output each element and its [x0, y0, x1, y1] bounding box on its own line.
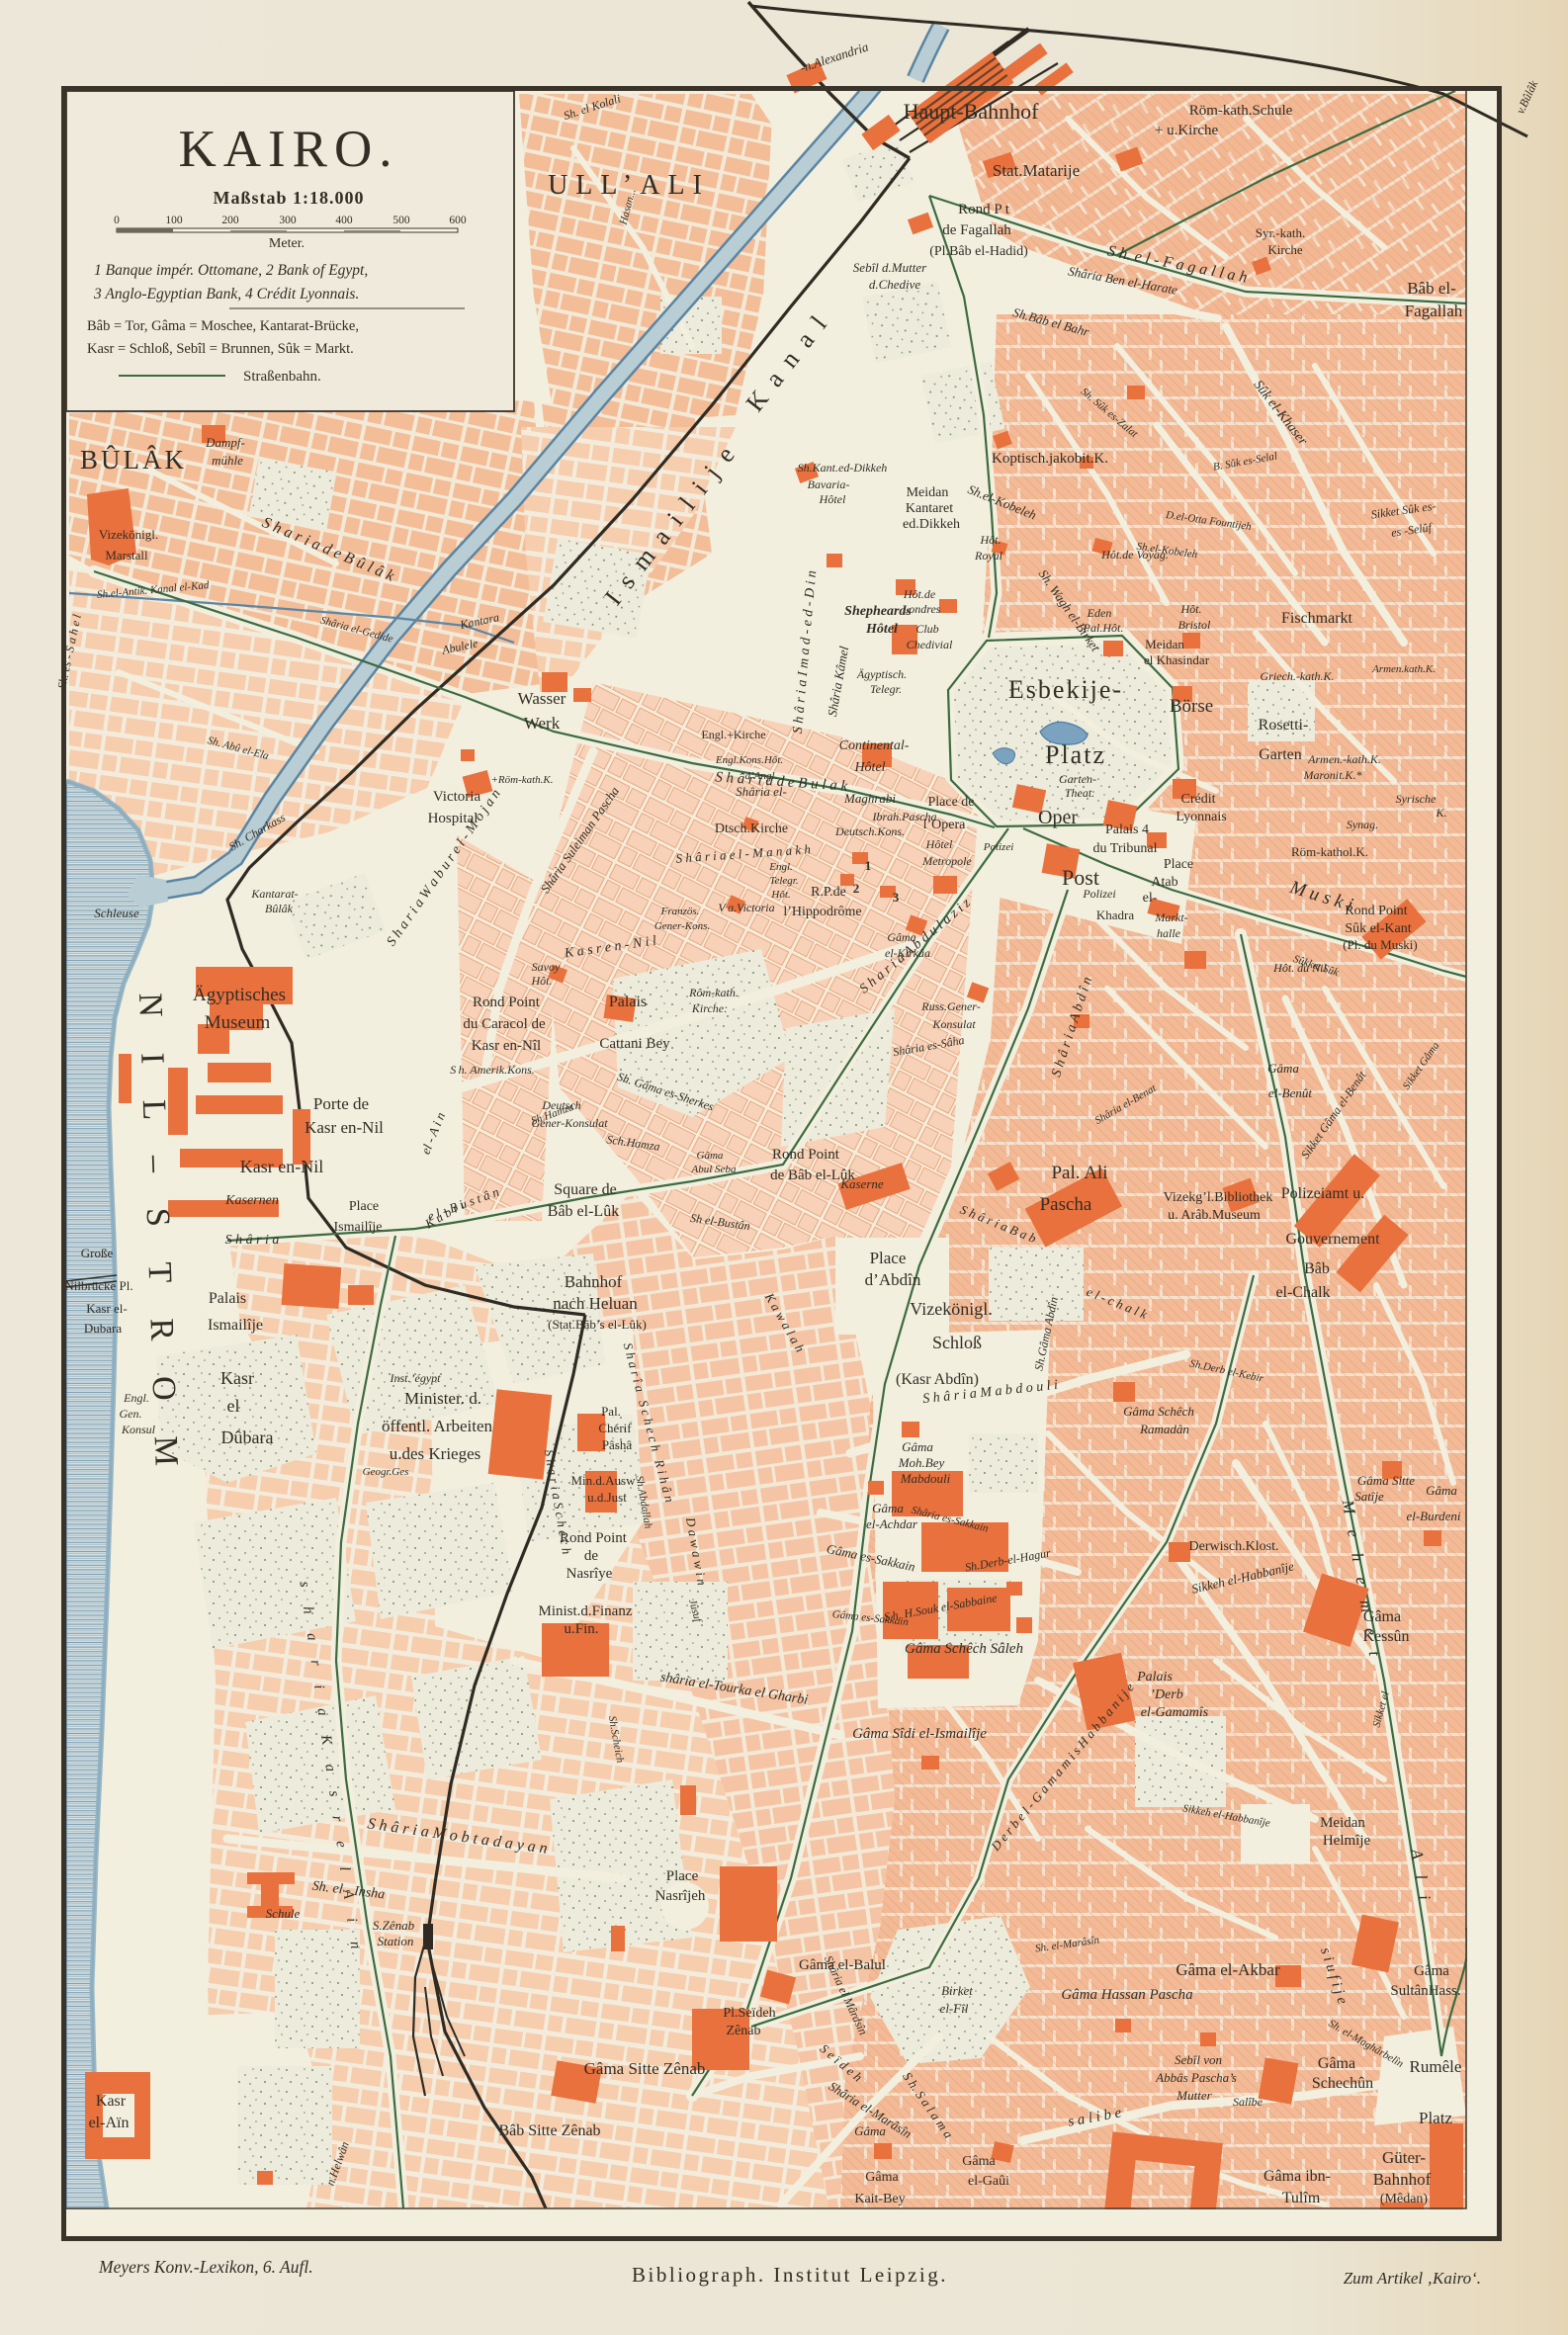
svg-text:Bâb el-: Bâb el-	[1407, 279, 1456, 298]
svg-text:halle: halle	[1157, 926, 1181, 940]
svg-text:Hôtel: Hôtel	[865, 622, 898, 637]
svg-text:+Röm-kath.K.: +Röm-kath.K.	[490, 774, 553, 786]
svg-text:Kessûn: Kessûn	[1362, 1628, 1409, 1645]
svg-text:Straßenbahn.: Straßenbahn.	[243, 369, 321, 385]
svg-text:Große: Große	[81, 1246, 114, 1260]
svg-text:Gâma Sitte Zênab: Gâma Sitte Zênab	[584, 2059, 706, 2078]
svg-text:Telegr.: Telegr.	[870, 682, 902, 696]
svg-text:el-Achdar: el-Achdar	[866, 1516, 918, 1531]
svg-text:Gâma: Gâma	[1267, 1061, 1299, 1076]
svg-text:Place: Place	[666, 1868, 699, 1884]
svg-text:Maghrabi: Maghrabi	[843, 791, 896, 806]
svg-text:Ibrah.Pascha: Ibrah.Pascha	[872, 810, 937, 823]
svg-text:mühle: mühle	[212, 453, 243, 468]
svg-text:Moh.Bey: Moh.Bey	[898, 1455, 945, 1470]
svg-text:Nilbrücke Pl.: Nilbrücke Pl.	[64, 1278, 132, 1293]
svg-text:0: 0	[114, 215, 120, 226]
svg-text:Rond Point: Rond Point	[772, 1147, 840, 1163]
svg-text:(Pl.Bâb el-Hadid): (Pl.Bâb el-Hadid)	[929, 244, 1028, 259]
svg-text:Ismailîje: Ismailîje	[208, 1317, 263, 1334]
svg-text:Gâma el-Akbar: Gâma el-Akbar	[1176, 1960, 1280, 1979]
svg-text:Ägyptisch.: Ägyptisch.	[856, 667, 907, 681]
svg-text:Garten-: Garten-	[1059, 772, 1096, 786]
svg-text:Polizei: Polizei	[1082, 887, 1115, 901]
svg-text:Röm-kathol.K.: Röm-kathol.K.	[1291, 844, 1368, 859]
svg-text:Khadra: Khadra	[1096, 908, 1134, 922]
svg-text:Tulîm: Tulîm	[1282, 2190, 1321, 2206]
svg-text:Kirche: Kirche	[1267, 242, 1303, 257]
svg-text:Gâma: Gâma	[1426, 1483, 1457, 1498]
svg-text:Haupt-Bahnhof: Haupt-Bahnhof	[904, 99, 1040, 124]
svg-text:1 Banque impér. Ottomane, 2 Ba: 1 Banque impér. Ottomane, 2 Bank of Egyp…	[94, 262, 368, 279]
svg-text:Inst.’égypt: Inst.’égypt	[390, 1371, 442, 1385]
svg-text:Vizekönigl.: Vizekönigl.	[99, 527, 158, 542]
svg-text:Pal. Ali: Pal. Ali	[1051, 1163, 1107, 1183]
svg-text:Syrische: Syrische	[1396, 792, 1437, 806]
svg-text:Gâma Schêch: Gâma Schêch	[1123, 1404, 1194, 1419]
svg-text:Kaserne: Kaserne	[839, 1176, 884, 1191]
svg-text:du Caracol de: du Caracol de	[463, 1016, 546, 1032]
svg-text:Rond Point: Rond Point	[1345, 904, 1408, 918]
svg-text:Eden: Eden	[1087, 606, 1112, 620]
svg-text:d.Chedive: d.Chedive	[869, 277, 921, 292]
svg-text:Meter.: Meter.	[269, 236, 305, 251]
svg-text:Engl.: Engl.	[123, 1391, 149, 1405]
svg-text:400: 400	[335, 215, 353, 226]
svg-text:Porte de: Porte de	[313, 1094, 369, 1113]
svg-text:Esbekije-: Esbekije-	[1008, 675, 1123, 704]
svg-text:el: el	[227, 1396, 240, 1416]
svg-text:Hôt.de: Hôt.de	[903, 587, 936, 601]
svg-text:Stat.Matarije: Stat.Matarije	[993, 161, 1080, 180]
svg-text:Palais 4: Palais 4	[1105, 822, 1149, 837]
svg-text:Hôtel: Hôtel	[853, 760, 885, 775]
svg-text:Bavaria-: Bavaria-	[808, 477, 850, 491]
svg-text:Minister. d.: Minister. d.	[404, 1389, 481, 1408]
svg-text:Shâria el-: Shâria el-	[736, 784, 787, 799]
svg-text:S h â r i a: S h â r i a	[225, 1233, 280, 1248]
svg-text:Gâma: Gâma	[902, 1439, 933, 1454]
svg-text:Kasr = Schloß, Sebîl = Brunnen: Kasr = Schloß, Sebîl = Brunnen, Sûk = Ma…	[87, 341, 354, 357]
svg-text:Griech.-kath.K.: Griech.-kath.K.	[1261, 669, 1335, 683]
svg-text:Kasernen: Kasernen	[224, 1193, 279, 1208]
svg-text:Londres: Londres	[902, 602, 941, 616]
svg-text:Schechûn: Schechûn	[1312, 2075, 1373, 2092]
svg-text:Maronit.K.*: Maronit.K.*	[1303, 768, 1362, 782]
svg-text:Gâma Hassan Pascha: Gâma Hassan Pascha	[1061, 1987, 1192, 2003]
svg-text:Kasr en-Nîl: Kasr en-Nîl	[472, 1038, 541, 1054]
svg-text:Zum Artikel ‚Kairo‘.: Zum Artikel ‚Kairo‘.	[1344, 2269, 1481, 2288]
svg-text:300: 300	[279, 215, 297, 226]
svg-text:Place: Place	[349, 1199, 379, 1214]
svg-text:öffentl. Arbeiten: öffentl. Arbeiten	[382, 1417, 493, 1435]
svg-text:Synag.: Synag.	[1347, 818, 1378, 831]
svg-text:Bâb Sitte Zênab: Bâb Sitte Zênab	[498, 2122, 600, 2139]
svg-text:Crédit: Crédit	[1181, 792, 1216, 807]
svg-text:Derwisch.Klost.: Derwisch.Klost.	[1189, 1539, 1279, 1554]
svg-text:Birket: Birket	[941, 1983, 973, 1998]
svg-text:Hôt.: Hôt.	[980, 533, 1002, 547]
svg-text:(Pl. du Muski): (Pl. du Muski)	[1343, 937, 1417, 952]
svg-text:Gâma: Gâma	[1414, 1963, 1449, 1979]
svg-text:Minist.d.Finanz: Minist.d.Finanz	[538, 1603, 632, 1619]
svg-text:Konsul: Konsul	[121, 1423, 156, 1436]
svg-text:Telegr.: Telegr.	[769, 875, 798, 887]
svg-text:Gâma ibn-: Gâma ibn-	[1263, 2168, 1331, 2185]
svg-text:Kait-Bey: Kait-Bey	[854, 2192, 905, 2206]
svg-text:’Derb: ’Derb	[1150, 1687, 1182, 1702]
svg-text:Geogr.Ges: Geogr.Ges	[363, 1466, 409, 1478]
svg-text:Bâb: Bâb	[1304, 1260, 1330, 1277]
svg-text:Kasr: Kasr	[220, 1368, 254, 1388]
svg-text:Rond Point: Rond Point	[473, 995, 541, 1010]
svg-text:Ismailîje: Ismailîje	[334, 1220, 383, 1235]
svg-text:Kasr en-Nil: Kasr en-Nil	[240, 1157, 323, 1176]
svg-text:Fischmarkt: Fischmarkt	[1281, 610, 1353, 627]
svg-text:(Kasr Abdîn): (Kasr Abdîn)	[896, 1371, 979, 1388]
svg-text:Helmîje: Helmîje	[1323, 1833, 1371, 1849]
svg-text:Cattani Bey: Cattani Bey	[599, 1036, 670, 1052]
svg-text:Gouvernement: Gouvernement	[1285, 1231, 1380, 1248]
svg-text:Ägyptisches: Ägyptisches	[193, 985, 286, 1005]
svg-text:Russ.Gener-: Russ.Gener-	[920, 999, 980, 1013]
svg-text:du Tribunal: du Tribunal	[1093, 841, 1158, 856]
svg-text:600: 600	[449, 215, 467, 226]
svg-text:el Khasindar: el Khasindar	[1144, 652, 1210, 667]
svg-text:Konsulat: Konsulat	[931, 1017, 976, 1031]
svg-text:el-Aïn: el-Aïn	[89, 2115, 130, 2131]
svg-text:Hôtel: Hôtel	[819, 492, 846, 506]
svg-text:Fagallah: Fagallah	[1405, 302, 1463, 320]
svg-text:Bibliograph. Institut Leipzig.: Bibliograph. Institut Leipzig.	[632, 2263, 948, 2287]
svg-text:Club: Club	[915, 622, 938, 636]
svg-text:K.: K.	[1435, 806, 1446, 820]
svg-text:V a.Victoria: V a.Victoria	[718, 901, 774, 914]
svg-text:Wasser: Wasser	[518, 689, 566, 708]
svg-text:Theat.: Theat.	[1065, 786, 1094, 800]
svg-text:Engl.: Engl.	[768, 861, 793, 873]
svg-text:Markt-: Markt-	[1154, 910, 1187, 924]
svg-text:Chérif: Chérif	[598, 1421, 632, 1435]
svg-text:Armen.-kath.K.: Armen.-kath.K.	[1307, 752, 1381, 766]
svg-text:Sebîl d.Mutter: Sebîl d.Mutter	[853, 260, 927, 275]
svg-text:Abul Seba: Abul Seba	[691, 1164, 737, 1175]
svg-text:Mabdouli: Mabdouli	[900, 1471, 951, 1486]
svg-text:Bûlâk: Bûlâk	[265, 902, 294, 915]
svg-text:Maßstab 1:18.000: Maßstab 1:18.000	[213, 188, 364, 208]
svg-text:Sûk el-Kant: Sûk el-Kant	[1345, 921, 1411, 936]
svg-text:Marstall: Marstall	[105, 548, 148, 562]
svg-text:nach Heluan: nach Heluan	[553, 1294, 638, 1313]
svg-text:Schloß: Schloß	[932, 1333, 982, 1352]
svg-text:de: de	[584, 1548, 599, 1564]
svg-text:Dûbara: Dûbara	[221, 1427, 274, 1447]
svg-text:de Fagallah: de Fagallah	[942, 222, 1011, 238]
svg-text:el-Fîl: el-Fîl	[940, 2001, 969, 2016]
svg-text:Pal.: Pal.	[601, 1404, 621, 1419]
svg-text:Hôt.: Hôt.	[531, 974, 553, 988]
svg-text:Ramadân: Ramadân	[1139, 1422, 1189, 1436]
svg-text:Syr.-kath.: Syr.-kath.	[1256, 225, 1306, 240]
svg-text:el-Gaûi: el-Gaûi	[968, 2174, 1009, 2189]
svg-text:Hôt.: Hôt.	[770, 889, 790, 901]
svg-text:Vizekg’l.Bibliothek: Vizekg’l.Bibliothek	[1164, 1190, 1273, 1205]
svg-text:Koptisch.jakobit.K.: Koptisch.jakobit.K.	[992, 451, 1108, 467]
svg-text:Kirche:: Kirche:	[691, 1001, 728, 1015]
svg-text:Gener-Kons.: Gener-Kons.	[654, 920, 710, 932]
svg-text:Bahnhof: Bahnhof	[1373, 2170, 1432, 2189]
svg-text:Engl.Kons.Hôt.: Engl.Kons.Hôt.	[715, 754, 783, 766]
svg-text:Dampf-: Dampf-	[205, 435, 245, 450]
svg-text:Nasrîye: Nasrîye	[566, 1566, 613, 1582]
svg-text:Sebîl von: Sebîl von	[1175, 2052, 1222, 2067]
svg-text:Min.d.Ausw: Min.d.Ausw	[570, 1473, 636, 1488]
svg-text:Abbâs Pascha’s: Abbâs Pascha’s	[1155, 2070, 1237, 2085]
svg-text:Werk: Werk	[524, 714, 561, 733]
svg-text:Gâma Schêch Sâleh: Gâma Schêch Sâleh	[905, 1641, 1023, 1657]
svg-text:el-Burdeni: el-Burdeni	[1406, 1509, 1460, 1523]
svg-text:1: 1	[865, 858, 872, 873]
svg-text:Deutsch.Kons.: Deutsch.Kons.	[834, 824, 905, 838]
svg-text:500: 500	[392, 215, 410, 226]
svg-text:Gâma: Gâma	[697, 1150, 724, 1162]
svg-text:Pl.Seïdeh: Pl.Seïdeh	[723, 2006, 775, 2021]
svg-text:Palais: Palais	[609, 994, 647, 1010]
svg-text:Rumêle: Rumêle	[1410, 2057, 1462, 2076]
svg-text:u.d.Just: u.d.Just	[587, 1490, 627, 1505]
svg-text:Gâma: Gâma	[1363, 1608, 1401, 1625]
svg-text:u.des Krieges: u.des Krieges	[390, 1444, 481, 1463]
svg-text:Salîbe: Salîbe	[1233, 2095, 1263, 2109]
svg-text:Engl.+Kirche: Engl.+Kirche	[701, 728, 765, 741]
svg-text:Gâma: Gâma	[1318, 2055, 1355, 2072]
svg-text:l’Hippodrôme: l’Hippodrôme	[783, 905, 861, 919]
svg-text:el-Chalk: el-Chalk	[1275, 1284, 1330, 1301]
svg-text:Savoy: Savoy	[532, 960, 561, 974]
svg-text:d’Angl.: d’Angl.	[745, 770, 778, 782]
svg-text:S h. Amerik.Kons.: S h. Amerik.Kons.	[450, 1063, 535, 1077]
svg-text:Pâshâ: Pâshâ	[602, 1437, 633, 1452]
svg-text:Gâma: Gâma	[872, 1501, 904, 1515]
svg-text:Armen.kath.K.: Armen.kath.K.	[1371, 663, 1436, 675]
svg-text:el-Benût: el-Benût	[1268, 1085, 1312, 1100]
svg-text:Sh.Kant.ed-Dikkeh: Sh.Kant.ed-Dikkeh	[798, 461, 888, 475]
svg-text:Palais: Palais	[1136, 1670, 1173, 1685]
svg-text:BÛLÂK: BÛLÂK	[80, 445, 187, 475]
svg-text:Gâma Sitte: Gâma Sitte	[1357, 1473, 1415, 1488]
svg-text:200: 200	[221, 215, 239, 226]
svg-text:Bahnhof: Bahnhof	[565, 1272, 623, 1291]
svg-text:Place: Place	[870, 1249, 907, 1267]
svg-text:Vizekönigl.: Vizekönigl.	[910, 1299, 992, 1319]
svg-text:Gâma: Gâma	[865, 2170, 899, 2185]
svg-text:Polizeiamt u.: Polizeiamt u.	[1281, 1185, 1364, 1202]
svg-text:Französ.: Französ.	[660, 906, 700, 917]
svg-text:Meidan: Meidan	[1145, 637, 1184, 651]
svg-text:+ u.Kirche: + u.Kirche	[1155, 123, 1219, 138]
svg-text:SultânHass.: SultânHass.	[1390, 1983, 1460, 1999]
svg-text:Kantarat-: Kantarat-	[250, 887, 298, 901]
svg-text:el-: el-	[1143, 891, 1158, 906]
svg-text:Meidan: Meidan	[907, 485, 949, 500]
svg-text:R.P.de: R.P.de	[811, 885, 846, 900]
svg-text:Gâma Sîdi el-Ismailîje: Gâma Sîdi el-Ismailîje	[852, 1726, 987, 1742]
svg-text:Schleuse: Schleuse	[94, 906, 139, 920]
svg-text:Schule: Schule	[266, 1906, 301, 1921]
svg-text:Garten: Garten	[1259, 746, 1302, 763]
svg-text:Rôm-kath.: Rôm-kath.	[688, 986, 739, 999]
svg-text:u.Fin.: u.Fin.	[564, 1621, 598, 1637]
svg-text:ed.Dikkeh: ed.Dikkeh	[903, 517, 960, 532]
svg-text:d’Abdîn: d’Abdîn	[865, 1270, 921, 1289]
svg-text:Rond P t: Rond P t	[958, 202, 1010, 217]
svg-text:Oper: Oper	[1038, 807, 1078, 828]
svg-text:Bâb el-Lûk: Bâb el-Lûk	[548, 1203, 619, 1220]
svg-text:Kasr: Kasr	[96, 2093, 127, 2110]
svg-text:Square de: Square de	[554, 1181, 617, 1198]
svg-text:Hôt.: Hôt.	[1180, 602, 1202, 616]
svg-text:u. Arâb.Museum: u. Arâb.Museum	[1168, 1208, 1261, 1223]
svg-text:Palais: Palais	[209, 1290, 246, 1307]
svg-text:Royal: Royal	[974, 549, 1003, 562]
svg-text:Gâma: Gâma	[854, 2123, 886, 2138]
svg-text:Kasr el-: Kasr el-	[86, 1301, 128, 1316]
svg-text:Bristol: Bristol	[1178, 618, 1211, 632]
svg-text:Museum: Museum	[205, 1012, 271, 1033]
svg-text:Dtsch.Kirche: Dtsch.Kirche	[715, 822, 788, 836]
svg-text:Rosetti-: Rosetti-	[1259, 717, 1309, 734]
svg-text:Dubara: Dubara	[84, 1321, 122, 1336]
svg-text:Platz: Platz	[1045, 740, 1106, 769]
svg-text:Chedivial: Chedivial	[907, 638, 953, 651]
svg-text:Metropole: Metropole	[921, 854, 972, 868]
svg-text:Lyonnais: Lyonnais	[1176, 810, 1226, 824]
svg-text:(Mêdan): (Mêdan)	[1380, 2192, 1429, 2206]
svg-text:Börse: Börse	[1170, 696, 1213, 717]
svg-text:Zênab: Zênab	[727, 2024, 761, 2038]
svg-text:Victoria: Victoria	[433, 789, 481, 805]
svg-text:(Stat.Bâb’s el-Lûk): (Stat.Bâb’s el-Lûk)	[548, 1317, 647, 1332]
svg-text:Platz: Platz	[1419, 2109, 1452, 2127]
svg-text:Kasr en-Nil: Kasr en-Nil	[305, 1118, 384, 1137]
svg-text:el-Gamamîs: el-Gamamîs	[1141, 1705, 1209, 1720]
svg-text:Place: Place	[1164, 857, 1193, 872]
svg-text:Potizei: Potizei	[983, 841, 1014, 853]
svg-text:3 Anglo-Egyptian Bank, 4 Crédi: 3 Anglo-Egyptian Bank, 4 Crédit Lyonnais…	[93, 286, 359, 303]
svg-text:Nasrîjeh: Nasrîjeh	[655, 1888, 706, 1904]
svg-text:Gâma: Gâma	[962, 2154, 996, 2169]
svg-text:Satîje: Satîje	[1354, 1489, 1384, 1504]
svg-text:Pascha: Pascha	[1040, 1194, 1092, 1215]
svg-text:Atab: Atab	[1151, 875, 1177, 890]
svg-text:Meyers Konv.-Lexikon, 6. Aufl.: Meyers Konv.-Lexikon, 6. Aufl.	[98, 2257, 313, 2277]
svg-text:Bâb = Tor, Gâma = Moschee, Kan: Bâb = Tor, Gâma = Moschee, Kantarat-Brüc…	[87, 318, 359, 334]
svg-text:2: 2	[853, 881, 860, 896]
svg-text:Kantaret: Kantaret	[906, 501, 953, 516]
svg-text:KAIRO.: KAIRO.	[178, 121, 398, 178]
svg-text:Station: Station	[378, 1934, 414, 1948]
svg-text:S.Zênab: S.Zênab	[373, 1918, 415, 1933]
svg-text:Mutter: Mutter	[1176, 2088, 1212, 2103]
svg-text:Röm-kath.Schule: Röm-kath.Schule	[1189, 103, 1293, 119]
svg-text:Place de: Place de	[927, 795, 974, 810]
svg-text:Continental-: Continental-	[839, 738, 910, 753]
svg-text:Güter-: Güter-	[1382, 2148, 1426, 2167]
svg-text:100: 100	[165, 215, 183, 226]
svg-text:Hôtel: Hôtel	[925, 837, 953, 851]
svg-text:Meidan: Meidan	[1320, 1815, 1365, 1831]
svg-text:Gen.: Gen.	[120, 1407, 142, 1421]
svg-text:3: 3	[893, 890, 900, 905]
